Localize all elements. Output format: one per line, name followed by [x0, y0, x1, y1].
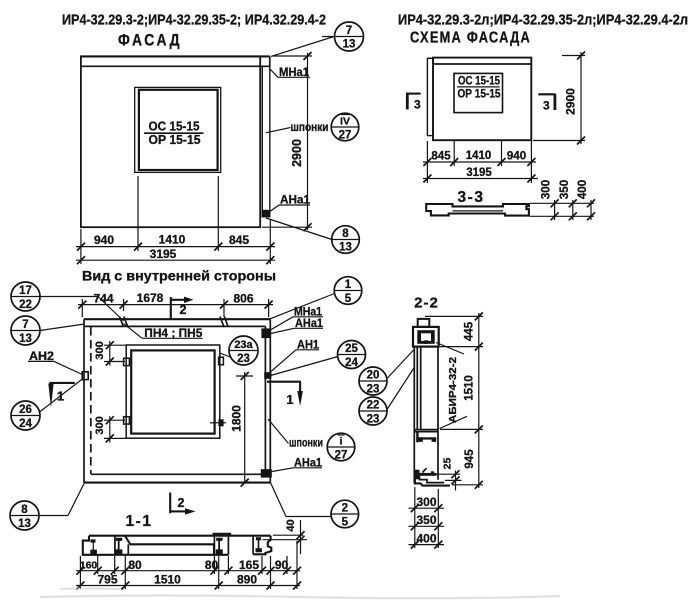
svg-text:1: 1: [345, 279, 352, 291]
svg-text:80: 80: [205, 558, 219, 572]
svg-text:АБИР4-32-2: АБИР4-32-2: [447, 357, 459, 423]
svg-text:26: 26: [19, 404, 32, 416]
svg-text:80: 80: [128, 558, 142, 572]
svg-text:25: 25: [442, 458, 454, 470]
svg-text:23: 23: [237, 353, 250, 365]
svg-text:7: 7: [22, 319, 28, 331]
svg-text:160: 160: [80, 559, 98, 571]
svg-text:13: 13: [339, 242, 352, 254]
svg-text:3195: 3195: [466, 167, 492, 179]
svg-text:300: 300: [541, 180, 553, 199]
svg-text:5: 5: [345, 293, 352, 305]
svg-text:945: 945: [464, 449, 476, 469]
svg-text:845: 845: [229, 233, 249, 247]
svg-text:17: 17: [19, 285, 32, 297]
svg-text:300: 300: [416, 495, 436, 509]
svg-text:350: 350: [416, 513, 436, 527]
svg-text:ОР 15-15: ОР 15-15: [149, 133, 201, 147]
svg-text:165: 165: [239, 558, 259, 572]
svg-text:1-1: 1-1: [126, 513, 153, 530]
svg-text:1800: 1800: [230, 405, 244, 432]
svg-text:27: 27: [335, 449, 348, 461]
svg-text:744: 744: [93, 292, 113, 306]
svg-text:90: 90: [275, 558, 289, 572]
svg-text:2: 2: [180, 303, 187, 317]
svg-text:7: 7: [346, 25, 352, 37]
svg-text:3-3: 3-3: [458, 189, 485, 206]
svg-text:1678: 1678: [137, 291, 164, 305]
svg-text:2-2: 2-2: [414, 295, 439, 312]
svg-text:1510: 1510: [463, 375, 475, 401]
svg-text:i: i: [340, 436, 343, 448]
svg-text:22: 22: [19, 299, 32, 311]
svg-text:2900: 2900: [290, 139, 304, 167]
svg-text:1410: 1410: [466, 150, 492, 162]
svg-text:24: 24: [345, 357, 358, 369]
svg-text:1410: 1410: [159, 233, 186, 247]
svg-text:2900: 2900: [564, 88, 578, 115]
svg-text:400: 400: [577, 180, 589, 199]
svg-text:5: 5: [342, 516, 349, 528]
svg-text:25: 25: [345, 343, 358, 355]
svg-text:3: 3: [543, 99, 550, 113]
svg-text:845: 845: [431, 150, 451, 162]
svg-text:шпонки: шпонки: [289, 437, 323, 449]
svg-text:40: 40: [285, 519, 297, 531]
svg-text:IV: IV: [340, 116, 350, 128]
svg-text:940: 940: [507, 150, 526, 162]
svg-text:3195: 3195: [150, 247, 177, 261]
svg-text:23а: 23а: [234, 339, 253, 351]
svg-text:ОС 15-15: ОС 15-15: [149, 119, 200, 133]
svg-text:3: 3: [414, 98, 421, 112]
svg-text:8: 8: [342, 228, 349, 240]
svg-text:ОС 15-15: ОС 15-15: [458, 75, 501, 87]
svg-text:ФАСАД: ФАСАД: [118, 32, 182, 50]
svg-text:2: 2: [342, 503, 348, 515]
svg-text:13: 13: [343, 39, 356, 51]
svg-text:300: 300: [94, 416, 106, 434]
svg-text:1510: 1510: [154, 573, 181, 587]
svg-text:8: 8: [21, 504, 28, 516]
svg-text:ИР4-32.29.3-2;ИР4-32.29.35-2;: ИР4-32.29.3-2;ИР4-32.29.35-2; ИР4.32.29.…: [62, 12, 326, 29]
svg-text:400: 400: [416, 531, 436, 545]
svg-text:ИР4-32.29.3-2л;ИР4-32.29.35-2л: ИР4-32.29.3-2л;ИР4-32.29.35-2л;ИР4-32.29…: [398, 12, 688, 29]
svg-text:2: 2: [178, 496, 185, 510]
svg-text:940: 940: [94, 233, 114, 247]
svg-text:890: 890: [237, 573, 257, 587]
svg-text:300: 300: [94, 341, 106, 359]
svg-text:24: 24: [19, 418, 32, 430]
svg-text:13: 13: [19, 333, 32, 345]
svg-text:23: 23: [367, 413, 380, 425]
svg-text:795: 795: [97, 572, 117, 586]
svg-text:806: 806: [233, 292, 253, 306]
svg-text:350: 350: [559, 180, 571, 199]
svg-text:13: 13: [18, 518, 31, 530]
svg-text:1: 1: [286, 392, 293, 407]
svg-text:27: 27: [339, 130, 352, 142]
svg-text:шпонки: шпонки: [291, 122, 329, 134]
svg-text:СХЕМА ФАСАДА: СХЕМА ФАСАДА: [410, 30, 531, 47]
svg-text:445: 445: [463, 321, 475, 341]
svg-text:23: 23: [367, 383, 380, 395]
svg-text:АН2: АН2: [29, 349, 54, 363]
svg-text:22: 22: [367, 400, 380, 412]
svg-text:ОР 15-15: ОР 15-15: [458, 88, 502, 100]
svg-text:Вид с внутренней стороны: Вид с внутренней стороны: [82, 268, 276, 284]
svg-text:20: 20: [367, 370, 380, 382]
